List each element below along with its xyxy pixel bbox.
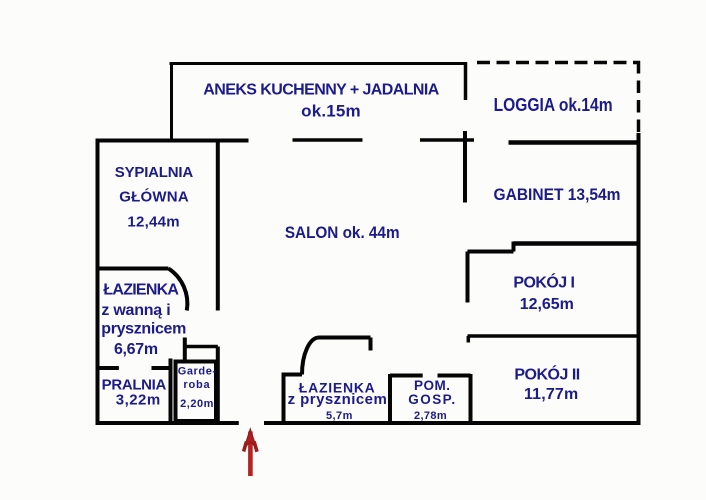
svg-text:GOSP.: GOSP. — [408, 392, 455, 407]
svg-text:z wanną i: z wanną i — [101, 302, 170, 319]
svg-text:5,7m: 5,7m — [326, 410, 353, 422]
svg-text:POKÓJ I: POKÓJ I — [513, 272, 575, 291]
svg-text:GŁÓWNA: GŁÓWNA — [119, 187, 189, 205]
svg-text:ANEKS KUCHENNY + JADALNIA: ANEKS KUCHENNY + JADALNIA — [203, 82, 439, 99]
svg-text:GABINET 13,54m: GABINET 13,54m — [494, 186, 621, 204]
svg-text:POKÓJ II: POKÓJ II — [514, 364, 580, 383]
svg-text:prysznicem: prysznicem — [101, 321, 186, 338]
svg-text:11,77m: 11,77m — [524, 386, 578, 403]
svg-text:2,20m: 2,20m — [180, 398, 214, 410]
svg-text:LOGGIA ok.14m: LOGGIA ok.14m — [494, 94, 613, 115]
svg-text:SYPIALNIA: SYPIALNIA — [115, 164, 194, 181]
svg-text:SALON ok. 44m: SALON ok. 44m — [285, 223, 400, 242]
svg-text:12,44m: 12,44m — [127, 214, 179, 231]
svg-text:12,65m: 12,65m — [520, 296, 574, 313]
svg-text:3,22m: 3,22m — [116, 392, 160, 409]
svg-text:ŁAZIENKA: ŁAZIENKA — [103, 281, 179, 298]
svg-text:ok.15m: ok.15m — [301, 102, 361, 121]
svg-text:roba: roba — [183, 379, 210, 391]
svg-text:2,78m: 2,78m — [414, 410, 447, 422]
svg-text:Garde-: Garde- — [178, 366, 217, 378]
svg-text:z prysznicem: z prysznicem — [288, 391, 387, 408]
svg-text:POM.: POM. — [414, 378, 450, 393]
svg-text:6,67m: 6,67m — [114, 341, 158, 358]
